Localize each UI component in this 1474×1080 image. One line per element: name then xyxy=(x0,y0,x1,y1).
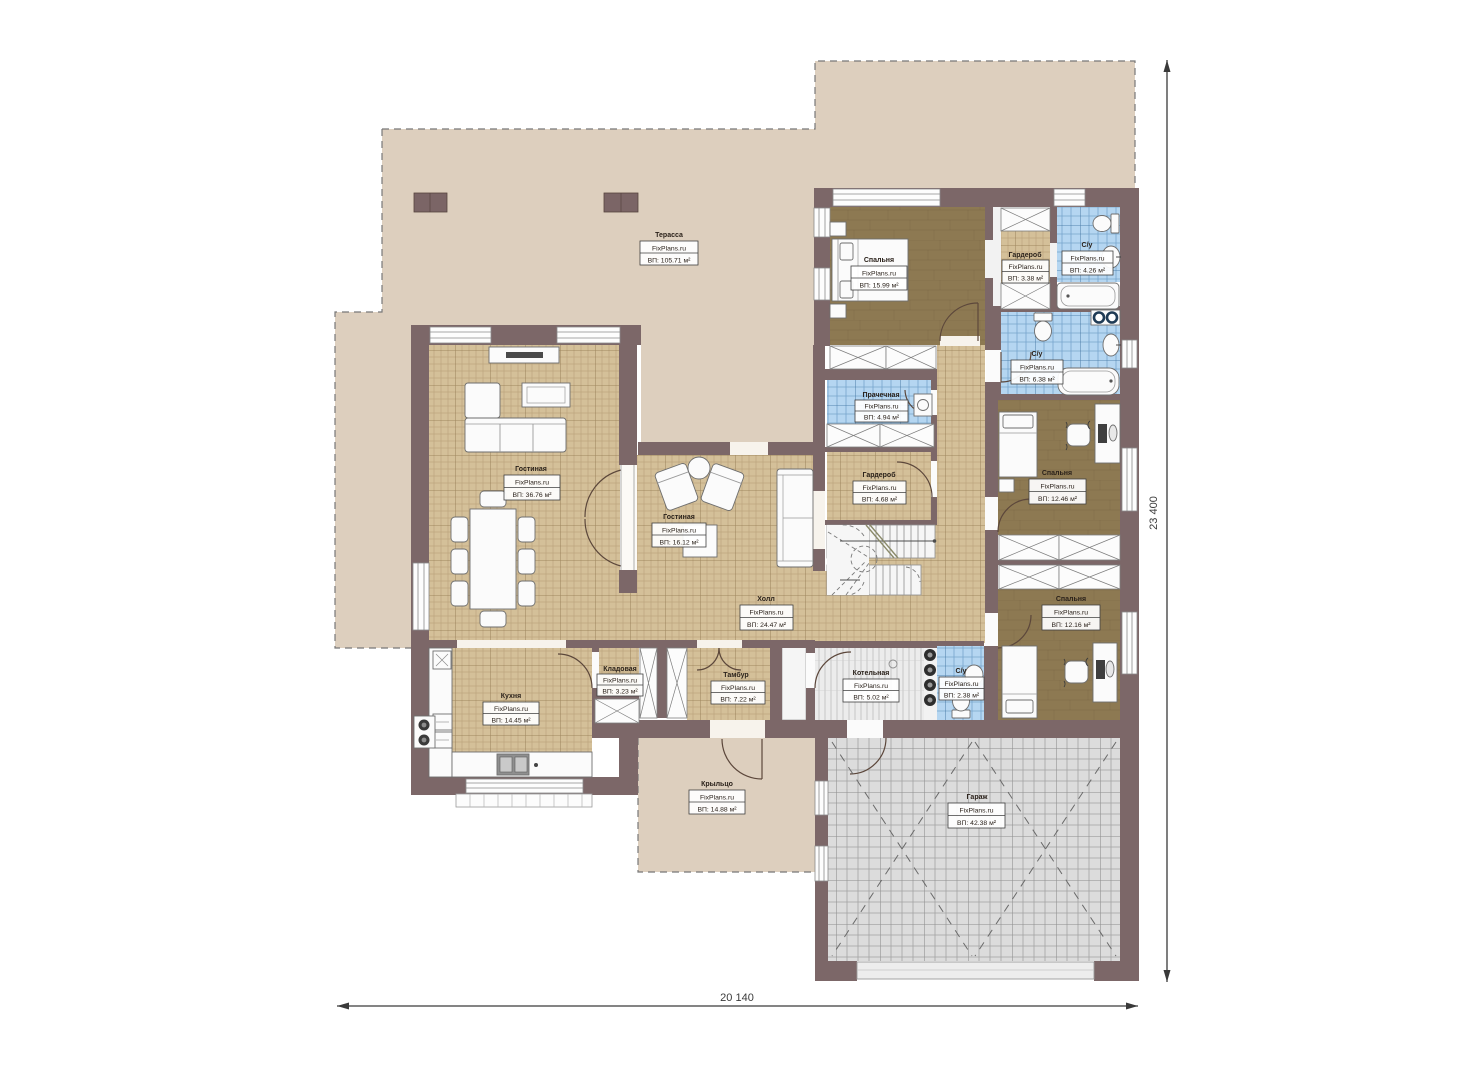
svg-text:Кухня: Кухня xyxy=(501,693,521,700)
svg-text:Крыльцо: Крыльцо xyxy=(701,781,733,788)
svg-text:ВП: 36.76 м²: ВП: 36.76 м² xyxy=(512,492,552,499)
svg-text:ВП: 7.22 м²: ВП: 7.22 м² xyxy=(720,697,756,704)
svg-text:ВП: 4.94 м²: ВП: 4.94 м² xyxy=(864,415,900,422)
svg-text:Прачечная: Прачечная xyxy=(862,392,899,399)
svg-text:ВП: 5.02 м²: ВП: 5.02 м² xyxy=(853,695,889,702)
svg-text:FixPlans.ru: FixPlans.ru xyxy=(862,271,896,278)
svg-text:Гараж: Гараж xyxy=(967,794,989,801)
svg-text:Терасса: Терасса xyxy=(655,232,683,239)
svg-text:ВП: 2.38 м²: ВП: 2.38 м² xyxy=(944,693,980,700)
svg-text:FixPlans.ru: FixPlans.ru xyxy=(652,246,686,253)
svg-text:Тамбур: Тамбур xyxy=(723,671,748,679)
svg-text:FixPlans.ru: FixPlans.ru xyxy=(515,480,549,487)
svg-text:FixPlans.ru: FixPlans.ru xyxy=(945,681,979,688)
svg-text:Спальня: Спальня xyxy=(1056,596,1086,603)
svg-text:ВП: 12.46 м²: ВП: 12.46 м² xyxy=(1038,496,1078,503)
svg-text:ВП: 4.68 м²: ВП: 4.68 м² xyxy=(862,497,898,504)
svg-text:Спальня: Спальня xyxy=(864,257,894,264)
svg-text:20 140: 20 140 xyxy=(720,992,754,1004)
svg-text:Спальня: Спальня xyxy=(1042,470,1072,477)
svg-text:FixPlans.ru: FixPlans.ru xyxy=(700,795,734,802)
svg-text:FixPlans.ru: FixPlans.ru xyxy=(960,808,994,815)
svg-text:FixPlans.ru: FixPlans.ru xyxy=(721,685,755,692)
svg-text:Гардероб: Гардероб xyxy=(862,471,896,479)
svg-text:ВП: 4.26 м²: ВП: 4.26 м² xyxy=(1070,268,1106,275)
svg-text:ВП: 14.88 м²: ВП: 14.88 м² xyxy=(697,807,737,814)
svg-text:ВП: 6.38 м²: ВП: 6.38 м² xyxy=(1019,377,1055,384)
svg-text:С/у: С/у xyxy=(1032,351,1043,358)
svg-text:FixPlans.ru: FixPlans.ru xyxy=(1041,484,1075,491)
svg-text:ВП: 15.99 м²: ВП: 15.99 м² xyxy=(859,283,899,290)
svg-text:Гостиная: Гостиная xyxy=(663,514,695,521)
svg-text:FixPlans.ru: FixPlans.ru xyxy=(865,404,899,411)
svg-text:FixPlans.ru: FixPlans.ru xyxy=(603,678,637,685)
svg-text:ВП: 24.47 м²: ВП: 24.47 м² xyxy=(747,622,787,629)
svg-text:ВП: 105.71 м²: ВП: 105.71 м² xyxy=(648,258,692,265)
svg-text:FixPlans.ru: FixPlans.ru xyxy=(863,485,897,492)
svg-text:ВП: 3.38 м²: ВП: 3.38 м² xyxy=(1008,276,1044,283)
svg-text:ВП: 3.23 м²: ВП: 3.23 м² xyxy=(602,689,638,696)
svg-text:С/у: С/у xyxy=(956,668,967,675)
svg-text:Холл: Холл xyxy=(757,596,775,603)
svg-text:23 400: 23 400 xyxy=(1148,496,1160,530)
svg-text:ВП: 16.12 м²: ВП: 16.12 м² xyxy=(659,540,699,547)
svg-text:С/у: С/у xyxy=(1082,242,1093,249)
svg-text:FixPlans.ru: FixPlans.ru xyxy=(1009,264,1043,271)
svg-text:FixPlans.ru: FixPlans.ru xyxy=(494,706,528,713)
svg-text:FixPlans.ru: FixPlans.ru xyxy=(662,528,696,535)
svg-text:Кладовая: Кладовая xyxy=(603,666,637,673)
svg-text:FixPlans.ru: FixPlans.ru xyxy=(750,610,784,617)
svg-text:Гардероб: Гардероб xyxy=(1008,251,1042,259)
svg-text:FixPlans.ru: FixPlans.ru xyxy=(1020,365,1054,372)
svg-text:FixPlans.ru: FixPlans.ru xyxy=(1054,610,1088,617)
svg-text:FixPlans.ru: FixPlans.ru xyxy=(854,683,888,690)
svg-text:ВП: 42.38 м²: ВП: 42.38 м² xyxy=(957,820,997,827)
svg-text:Гостиная: Гостиная xyxy=(515,466,547,473)
svg-text:FixPlans.ru: FixPlans.ru xyxy=(1071,256,1105,263)
svg-text:ВП: 12.16 м²: ВП: 12.16 м² xyxy=(1051,622,1091,629)
svg-text:ВП: 14.45 м²: ВП: 14.45 м² xyxy=(491,718,531,725)
svg-text:Котельная: Котельная xyxy=(853,670,890,677)
